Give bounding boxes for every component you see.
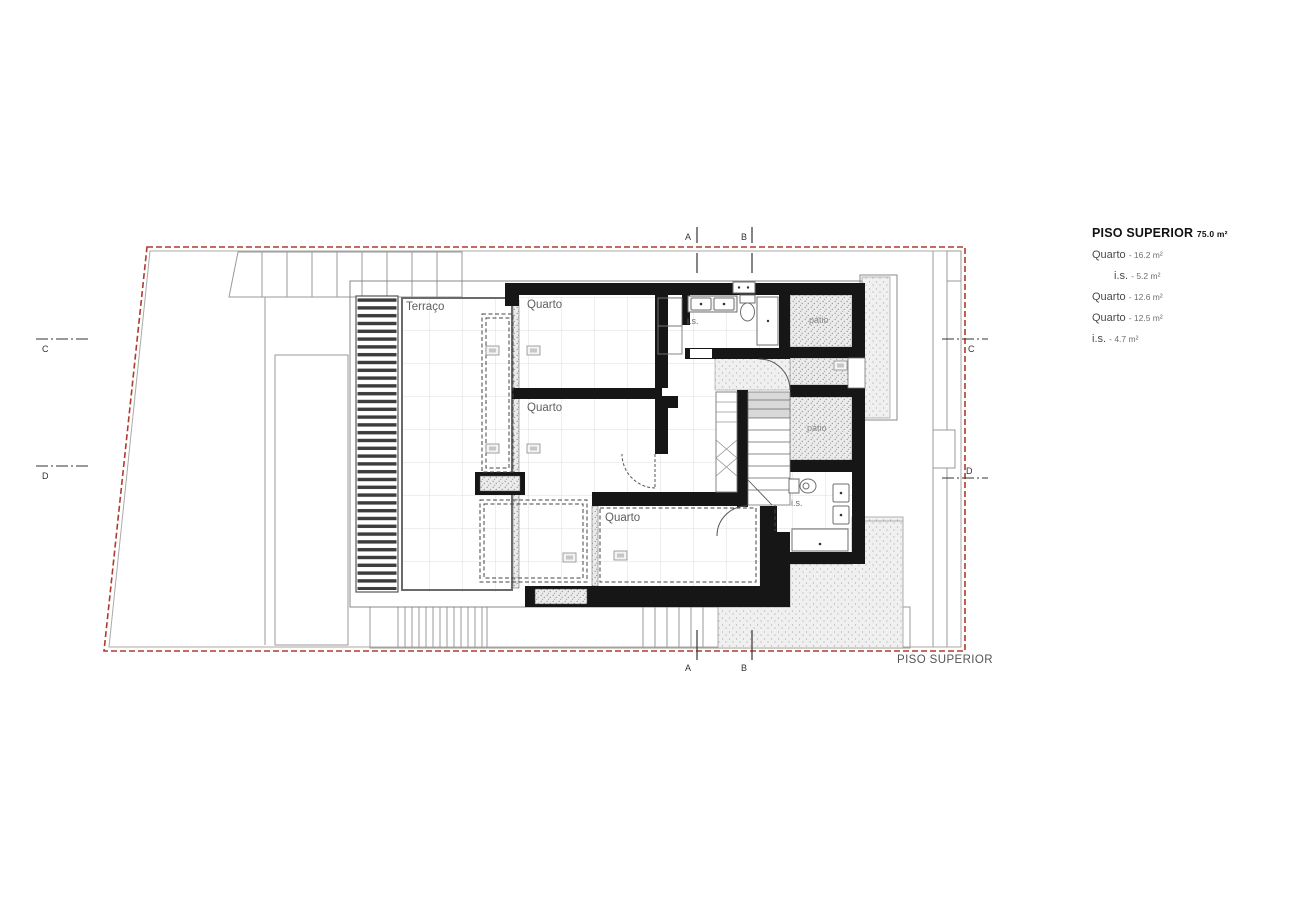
lower-band-dividers <box>398 607 487 648</box>
wall-light-icon <box>527 346 540 355</box>
room-label-bedroom-3: Quarto <box>605 512 640 524</box>
section-mark-b-top: B <box>741 227 752 273</box>
svg-text:D: D <box>42 471 49 481</box>
svg-text:D: D <box>966 466 973 476</box>
room-label-bedroom-1: Quarto <box>527 299 562 311</box>
plan-caption: PISO SUPERIOR <box>897 654 993 666</box>
wall-light-icon <box>834 361 847 370</box>
wall-light-icon <box>563 553 576 562</box>
lower-band-stripes-right <box>643 607 703 648</box>
legend-item-value: - 12.5 m² <box>1129 313 1163 323</box>
east-niche <box>848 358 865 388</box>
stair-closet <box>716 392 737 492</box>
section-mark-d-left: D <box>36 466 88 481</box>
wall-light-icon <box>614 551 627 560</box>
wall-inset-south <box>535 589 587 604</box>
legend-title: PISO SUPERIOR 75.0 m² <box>1092 226 1282 240</box>
legend-item: Quarto - 16.2 m² <box>1092 249 1282 261</box>
legend-item-name: Quarto <box>1092 249 1126 261</box>
legend-item-value: - 4.7 m² <box>1109 334 1138 344</box>
glazing-strip-bedroom3 <box>592 506 598 586</box>
area-legend: PISO SUPERIOR 75.0 m² Quarto - 16.2 m² i… <box>1092 226 1282 345</box>
toilet-tank-icon <box>740 295 755 303</box>
lower-band-stripes-left <box>405 607 482 648</box>
legend-item: Quarto - 12.5 m² <box>1092 312 1282 324</box>
legend-item-name: i.s. <box>1114 270 1128 282</box>
stair-lower-flight <box>748 418 790 505</box>
room-label-terrace: Terraço <box>406 301 444 313</box>
louver-slats <box>358 298 397 590</box>
toilet-icon <box>741 303 755 321</box>
svg-text:C: C <box>968 344 975 354</box>
cabinet-icon <box>733 282 755 293</box>
right-gravel-strip <box>862 277 890 418</box>
bath1-door-gap <box>690 349 712 358</box>
stair-upper-flight <box>748 392 790 418</box>
shower-tray-icon <box>792 529 848 551</box>
legend-item-value: - 12.6 m² <box>1129 292 1163 302</box>
section-mark-c-left: C <box>36 339 88 354</box>
legend-item-value: - 5.2 m² <box>1131 271 1160 281</box>
legend-item: i.s. - 5.2 m² <box>1092 270 1282 282</box>
svg-text:A: A <box>685 663 691 673</box>
right-garden-box-2 <box>947 251 961 281</box>
garden-pergola-band <box>229 252 462 297</box>
section-mark-a-top: A <box>685 227 697 273</box>
legend-item-name: Quarto <box>1092 312 1126 324</box>
garden-rect <box>275 355 348 645</box>
toilet-tank-icon <box>789 479 799 493</box>
wall-inset-west <box>480 476 520 491</box>
legend-title-text: PISO SUPERIOR <box>1092 226 1193 240</box>
svg-text:B: B <box>741 663 747 673</box>
wall-light-icon <box>486 444 499 453</box>
toilet-bowl-detail <box>803 483 809 489</box>
svg-text:C: C <box>42 344 49 354</box>
right-garden-box-1 <box>933 430 955 468</box>
floorplan-canvas: Terraço Quarto Quarto Quarto i.s. i.s. p… <box>0 0 1293 914</box>
legend-item-value: - 16.2 m² <box>1129 250 1163 260</box>
room-label-patio-1: pátio <box>809 315 829 325</box>
svg-text:B: B <box>741 232 747 242</box>
glazing-strip-west <box>513 300 519 588</box>
legend-item: Quarto - 12.6 m² <box>1092 291 1282 303</box>
legend-item-name: i.s. <box>1092 333 1106 345</box>
wall-light-icon <box>527 444 540 453</box>
svg-text:A: A <box>685 232 691 242</box>
stair-landing <box>715 358 790 390</box>
room-label-bedroom-2: Quarto <box>527 402 562 414</box>
wall-light-icon <box>486 346 499 355</box>
room-label-patio-2: pátio <box>807 423 827 433</box>
legend-title-area: 75.0 m² <box>1197 229 1228 239</box>
legend-item: i.s. - 4.7 m² <box>1092 333 1282 345</box>
room-label-bath-1: i.s. <box>687 316 699 326</box>
floorplan-drawing: Terraço Quarto Quarto Quarto i.s. i.s. p… <box>0 0 1293 914</box>
room-label-bath-2: i.s. <box>791 498 803 508</box>
legend-item-name: Quarto <box>1092 291 1126 303</box>
